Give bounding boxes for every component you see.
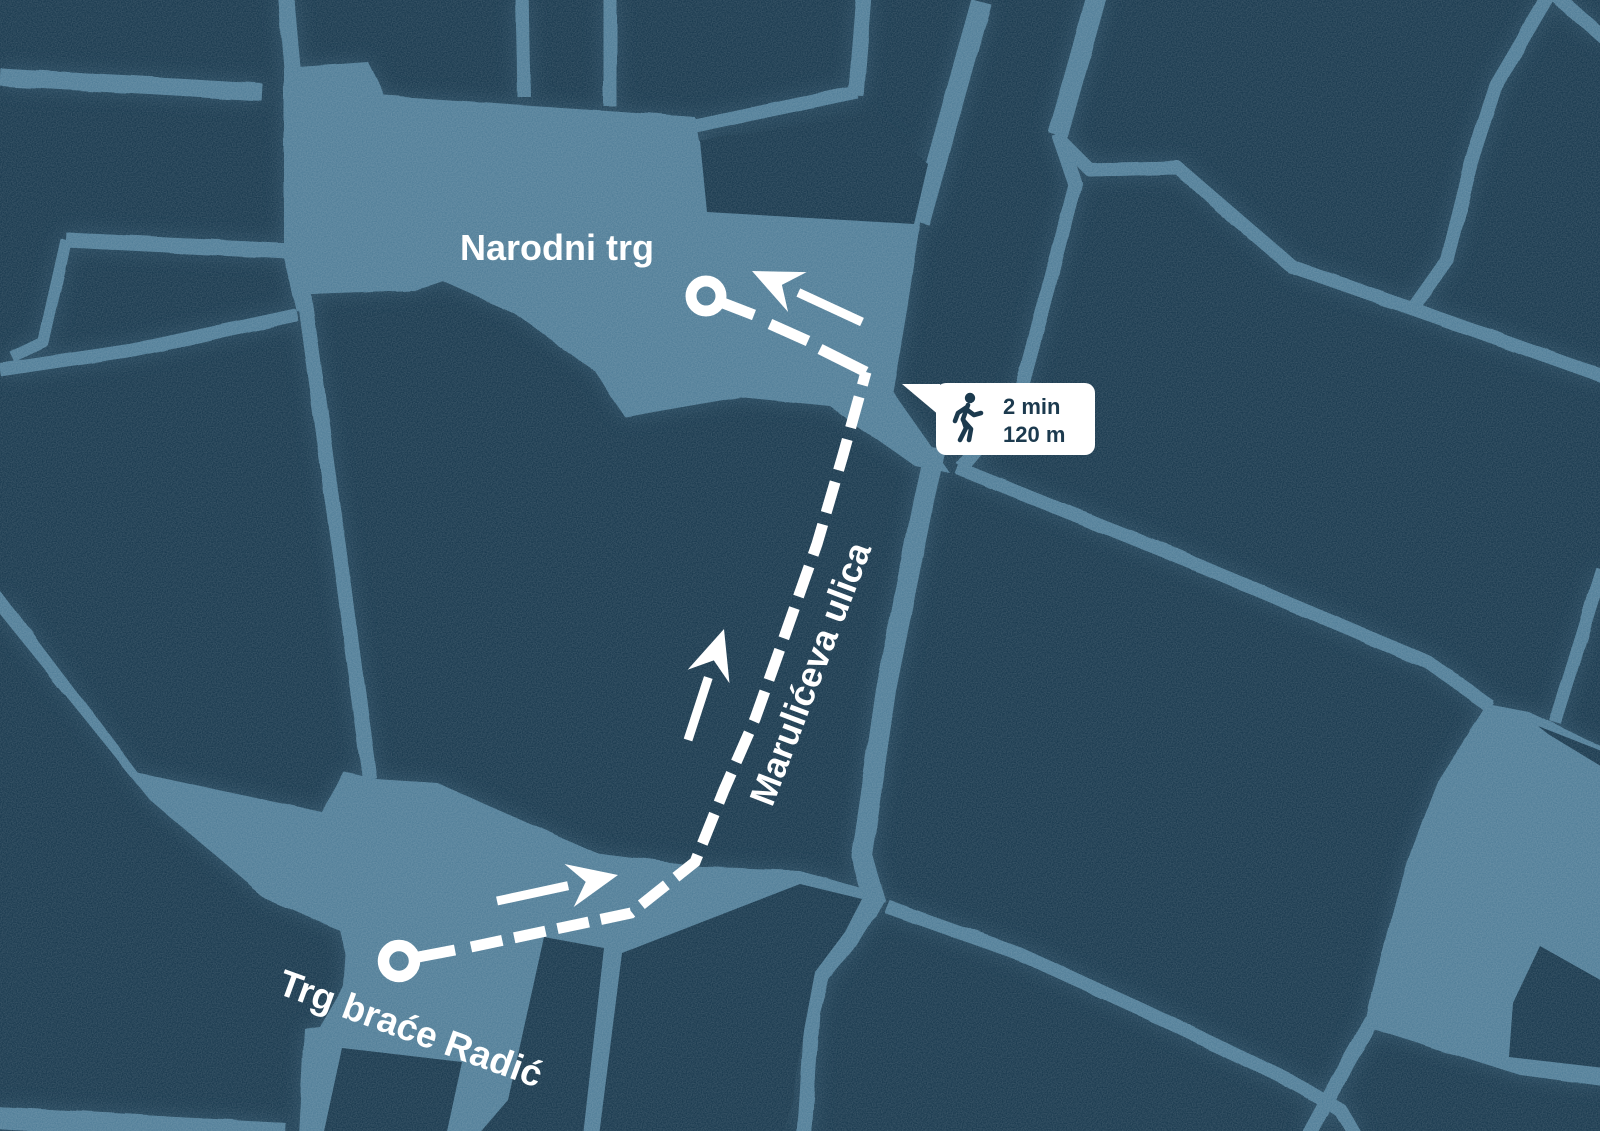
svg-text:2 min: 2 min — [1003, 394, 1060, 419]
svg-text:Narodni trg: Narodni trg — [460, 227, 654, 268]
svg-text:120 m: 120 m — [1003, 422, 1065, 447]
